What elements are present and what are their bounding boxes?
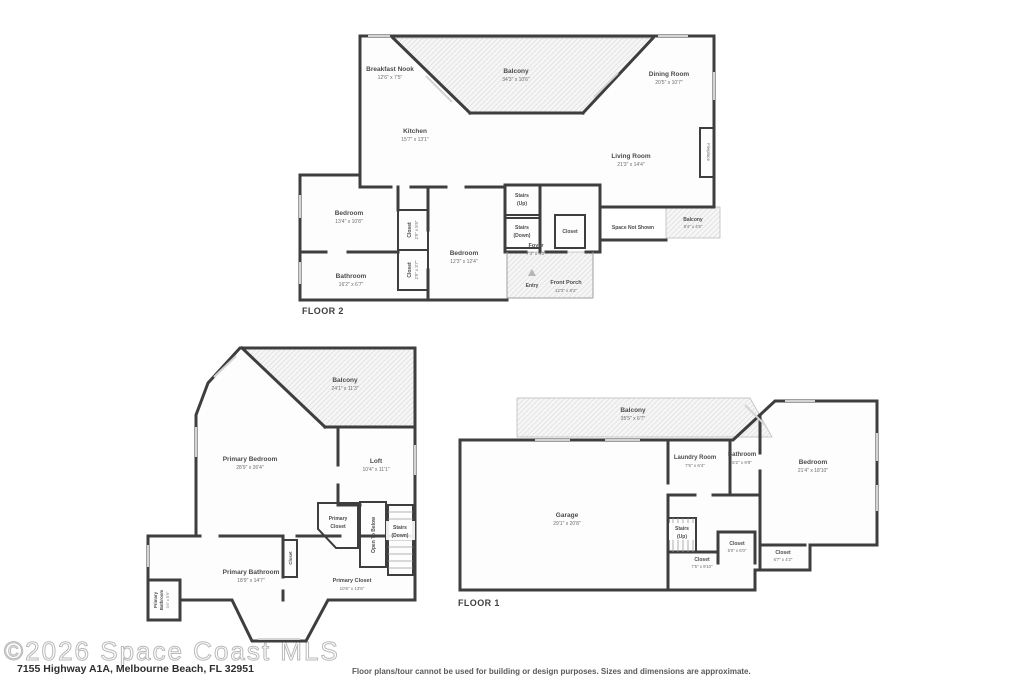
room-closet-foyer: Closet bbox=[562, 229, 578, 235]
room-dining: Dining Room bbox=[649, 71, 690, 78]
room-bathroom: Bathroom bbox=[336, 273, 367, 280]
floorplan-page: ©2026 Space Coast MLS bbox=[0, 0, 1024, 683]
room-foyer-dims: 7'3" x 4'2" bbox=[526, 251, 546, 256]
room-dining-dims: 20'5" x 10'7" bbox=[655, 80, 683, 86]
room-balcony-side-dims: 8'4" x 4'5" bbox=[684, 224, 703, 229]
room-closet-b-dims: 5'0" x 6'0" bbox=[728, 548, 747, 553]
room-space-not-shown: Space Not Shown bbox=[612, 225, 654, 231]
room-stairs-up1-sub: (Up) bbox=[677, 534, 687, 540]
room-stairs-down3: Stairs bbox=[393, 525, 407, 531]
room-living: Living Room bbox=[611, 153, 651, 160]
room-closet-c-dims: 6'7" x 4'2" bbox=[774, 557, 793, 562]
property-address: 7155 Highway A1A, Melbourne Beach, FL 32… bbox=[17, 663, 254, 675]
room-front-porch-dims: 12'3" x 8'2" bbox=[555, 288, 578, 293]
room-breakfast-nook-dims: 12'6" x 7'5" bbox=[378, 75, 403, 81]
room-balcony-dims: 34'3" x 10'6" bbox=[502, 77, 530, 83]
room-closet-a: Closet bbox=[694, 557, 710, 563]
room-primary-closet-dims: 10'6" x 13'6" bbox=[340, 586, 365, 591]
room-open-to-below: Open To Below bbox=[371, 517, 377, 553]
room-primary-closet: Primary Closet bbox=[333, 578, 372, 584]
room-closet-small3: Closet bbox=[288, 551, 293, 565]
room-laundry: Laundry Room bbox=[674, 455, 716, 461]
floor2-label: FLOOR 2 bbox=[302, 306, 344, 316]
room-bedroom-left: Bedroom bbox=[335, 210, 364, 217]
room-balcony-side: Balcony bbox=[683, 217, 703, 223]
room-loft-dims: 10'4" x 11'1" bbox=[362, 467, 389, 473]
room-balcony3: Balcony bbox=[332, 377, 358, 384]
room-bathroom1-dims: 5'2" x 9'9" bbox=[732, 460, 752, 465]
room-balcony3-dims: 24'1" x 11'3" bbox=[331, 386, 358, 392]
disclaimer-text: Floor plans/tour cannot be used for buil… bbox=[352, 667, 751, 676]
room-closet-top: Closet bbox=[407, 222, 413, 238]
room-living-dims: 21'3" x 14'4" bbox=[617, 162, 645, 168]
room-stairs-down3-sub: (Down) bbox=[392, 533, 409, 539]
room-primary-bathroom: Primary Bathroom bbox=[223, 569, 280, 576]
floor1-label: FLOOR 1 bbox=[458, 598, 500, 608]
room-garage: Garage bbox=[556, 512, 579, 519]
room-bathroom-dims: 16'2" x 6'7" bbox=[339, 282, 364, 288]
room-kitchen: Kitchen bbox=[403, 128, 427, 135]
floor3-plan: Balcony 24'1" x 11'3" Primary Bedroom 28… bbox=[140, 345, 420, 657]
room-closet-c: Closet bbox=[775, 550, 791, 556]
room-foyer: Foyer bbox=[529, 243, 545, 249]
room-primary-closet-upper-1: Primary bbox=[329, 516, 348, 522]
room-laundry-dims: 7'5" x 6'4" bbox=[685, 463, 705, 468]
room-bathroom1: Bathroom bbox=[728, 452, 756, 458]
room-closet-a-dims: 7'5" x 9'10" bbox=[691, 564, 713, 569]
room-stairs-down: Stairs bbox=[515, 225, 529, 231]
floor1-plan: Balcony 35'5" x 6'7" Laundry Room 7'5" x… bbox=[455, 393, 880, 608]
room-balcony: Balcony bbox=[503, 68, 529, 75]
room-primary-bathroom-dims: 18'9" x 14'7" bbox=[237, 578, 265, 584]
room-bedroom1: Bedroom bbox=[799, 459, 828, 466]
room-primary-bathroom-small-2: Bathroom bbox=[159, 590, 164, 610]
room-bedroom-center-dims: 12'3" x 12'4" bbox=[450, 259, 478, 265]
room-closet-bottom-dims: 2'9" x 3'7" bbox=[414, 260, 419, 279]
room-primary-closet-upper-2: Closet bbox=[330, 524, 346, 530]
room-closet-b: Closet bbox=[729, 541, 745, 547]
room-entry: Entry bbox=[526, 283, 539, 289]
room-stairs-down-sub: (Down) bbox=[514, 233, 531, 239]
room-primary-bathroom-small-1: Primary bbox=[153, 591, 158, 608]
room-closet-top-dims: 2'9" x 5'5" bbox=[414, 220, 419, 239]
room-breakfast-nook: Breakfast Nook bbox=[366, 66, 414, 73]
room-primary-bedroom: Primary Bedroom bbox=[223, 456, 278, 463]
room-stairs-up-sub: (Up) bbox=[517, 201, 527, 207]
room-stairs-up1: Stairs bbox=[675, 526, 689, 532]
room-loft: Loft bbox=[370, 458, 383, 465]
room-front-porch: Front Porch bbox=[550, 280, 582, 286]
room-bedroom1-dims: 21'4" x 18'10" bbox=[798, 468, 828, 474]
room-bedroom-left-dims: 13'4" x 10'8" bbox=[335, 219, 363, 225]
room-primary-bedroom-dims: 28'9" x 26'4" bbox=[236, 465, 264, 471]
room-stairs-up: Stairs bbox=[515, 193, 529, 199]
room-balcony1: Balcony bbox=[620, 407, 646, 414]
room-kitchen-dims: 15'7" x 13'1" bbox=[401, 137, 429, 143]
room-primary-bathroom-small-dims: 3'4" x 5'9" bbox=[166, 591, 170, 608]
floor2-plan: Breakfast Nook 12'6" x 7'5" Balcony 34'3… bbox=[296, 30, 726, 312]
room-balcony1-dims: 35'5" x 6'7" bbox=[621, 416, 646, 422]
room-garage-dims: 29'1" x 20'8" bbox=[553, 521, 581, 527]
room-bedroom-center: Bedroom bbox=[450, 250, 479, 257]
room-fireplace: Fireplace bbox=[706, 143, 711, 161]
room-closet-bottom: Closet bbox=[407, 262, 413, 278]
